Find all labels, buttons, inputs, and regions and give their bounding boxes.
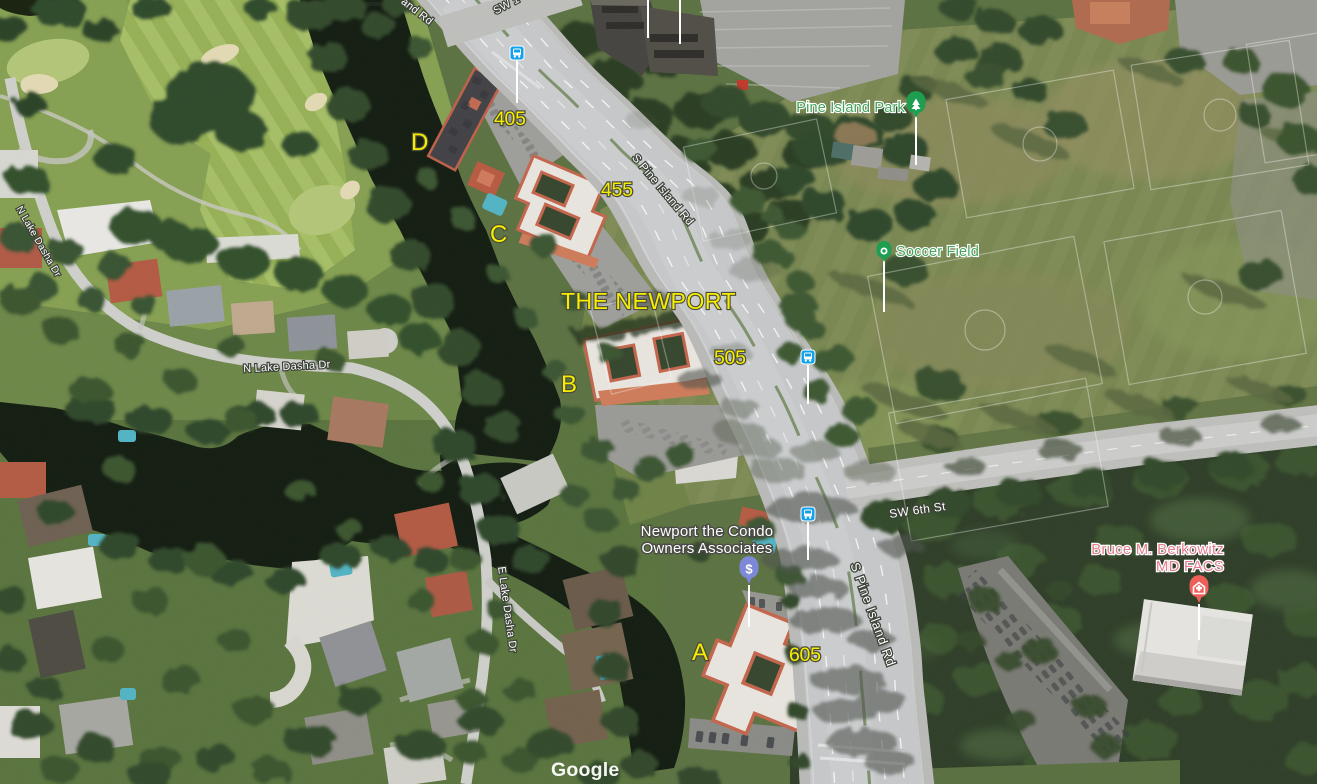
svg-text:Bruce M. Berkowitz: Bruce M. Berkowitz	[1091, 541, 1224, 558]
svg-text:MD FACS: MD FACS	[1156, 558, 1224, 575]
svg-text:$: $	[745, 562, 753, 577]
svg-text:A: A	[692, 639, 708, 666]
svg-text:Pine Island Park: Pine Island Park	[796, 100, 905, 116]
svg-text:D: D	[411, 129, 428, 156]
svg-text:605: 605	[789, 644, 821, 666]
svg-text:Google: Google	[551, 759, 619, 781]
svg-text:B: B	[561, 371, 577, 398]
svg-text:C: C	[490, 221, 507, 248]
svg-text:405: 405	[494, 108, 526, 130]
svg-text:Newport the Condo: Newport the Condo	[641, 523, 774, 540]
svg-text:505: 505	[714, 347, 746, 369]
svg-text:Soccer Field: Soccer Field	[896, 244, 979, 260]
svg-text:Owners Associates: Owners Associates	[642, 540, 773, 557]
svg-text:THE NEWPORT: THE NEWPORT	[561, 288, 736, 314]
svg-text:455: 455	[601, 179, 633, 201]
